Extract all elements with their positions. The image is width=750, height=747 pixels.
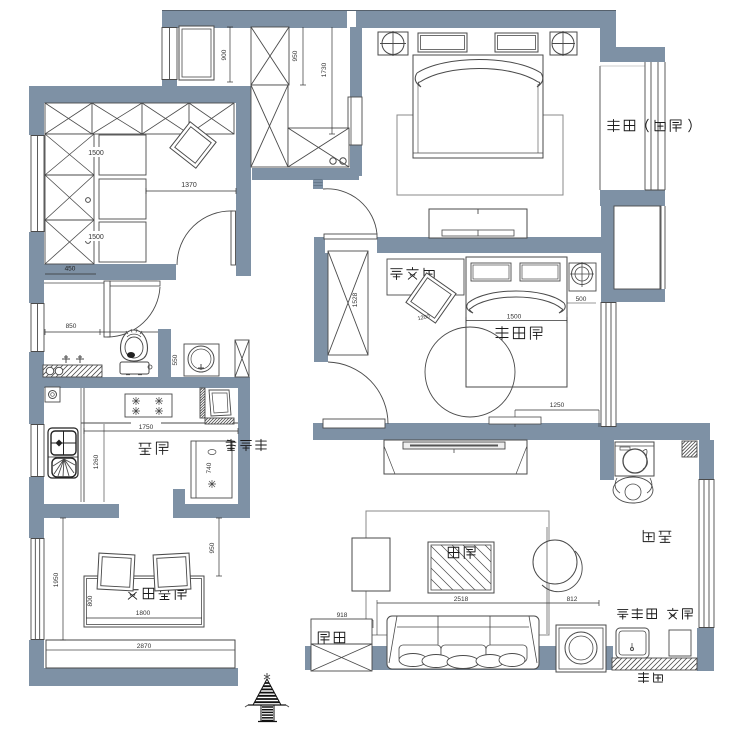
- svg-text:1260: 1260: [93, 454, 100, 469]
- svg-text:1528: 1528: [352, 292, 359, 307]
- svg-text:1250: 1250: [550, 402, 565, 409]
- svg-text:800: 800: [87, 595, 94, 606]
- svg-text:2870: 2870: [137, 643, 152, 650]
- svg-text:900: 900: [221, 49, 228, 60]
- svg-text:812: 812: [567, 596, 578, 603]
- svg-text:1950: 1950: [53, 572, 60, 587]
- svg-text:1500: 1500: [507, 314, 522, 321]
- svg-text:950: 950: [292, 50, 299, 61]
- svg-text:850: 850: [66, 323, 77, 330]
- svg-text:950: 950: [209, 542, 216, 553]
- svg-text:450: 450: [65, 266, 76, 273]
- svg-text:1750: 1750: [139, 424, 154, 431]
- svg-text:1730: 1730: [321, 62, 328, 77]
- svg-text:1370: 1370: [181, 182, 197, 189]
- svg-text:1800: 1800: [136, 610, 151, 617]
- svg-text:2518: 2518: [454, 596, 469, 603]
- svg-text:1500: 1500: [88, 150, 104, 157]
- svg-text:918: 918: [337, 612, 348, 619]
- svg-text:740: 740: [206, 462, 213, 473]
- svg-text:1500: 1500: [88, 234, 104, 241]
- svg-text:550: 550: [172, 354, 179, 365]
- svg-text:500: 500: [576, 296, 587, 303]
